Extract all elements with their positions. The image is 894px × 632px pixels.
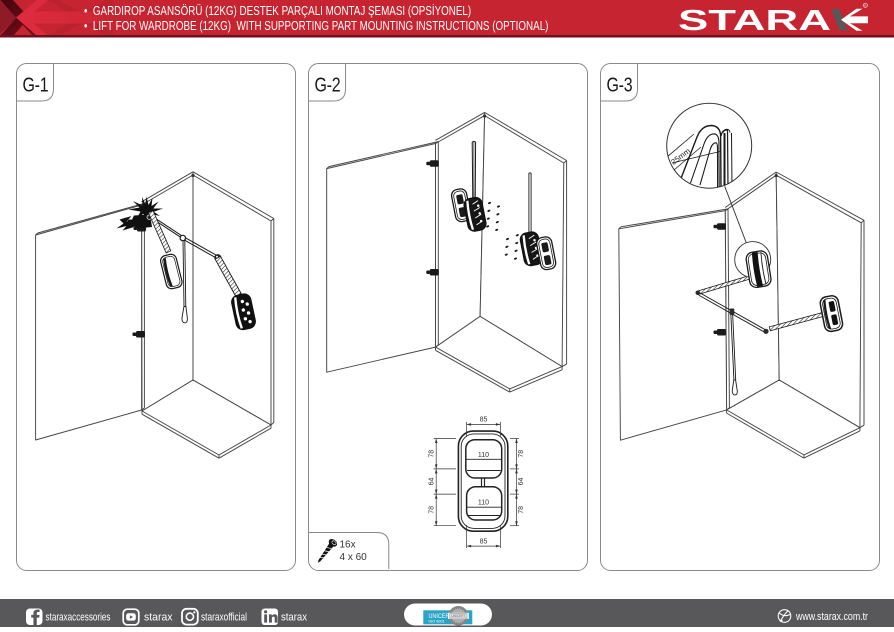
- svg-text:110: 110: [478, 452, 489, 459]
- svg-text:www.starax.com.tr: www.starax.com.tr: [795, 611, 868, 623]
- svg-text:starax: starax: [281, 612, 307, 624]
- svg-text:R: R: [864, 4, 867, 8]
- svg-text:4 x 60: 4 x 60: [340, 552, 368, 563]
- svg-text:starax: starax: [144, 612, 173, 624]
- svg-text:64: 64: [428, 478, 435, 486]
- svg-text:G-2: G-2: [314, 73, 340, 96]
- svg-text:16x: 16x: [340, 540, 356, 551]
- svg-text:G-3: G-3: [606, 73, 632, 96]
- svg-text:G-1: G-1: [22, 73, 48, 96]
- svg-text:staraxofficial: staraxofficial: [201, 612, 247, 624]
- svg-text:78: 78: [428, 506, 435, 514]
- svg-text:78: 78: [518, 506, 525, 514]
- svg-text:110: 110: [478, 500, 489, 507]
- svg-text:STARA: STARA: [678, 5, 831, 37]
- svg-text:64: 64: [518, 478, 525, 486]
- svg-text:85: 85: [480, 416, 488, 423]
- svg-text:78: 78: [518, 450, 525, 458]
- svg-text:staraxaccessories: staraxaccessories: [46, 612, 111, 624]
- svg-text:85: 85: [480, 539, 488, 546]
- svg-text:ISO 9001: ISO 9001: [429, 620, 445, 624]
- svg-text:UNICERT: UNICERT: [451, 614, 465, 618]
- svg-text:78: 78: [428, 450, 435, 458]
